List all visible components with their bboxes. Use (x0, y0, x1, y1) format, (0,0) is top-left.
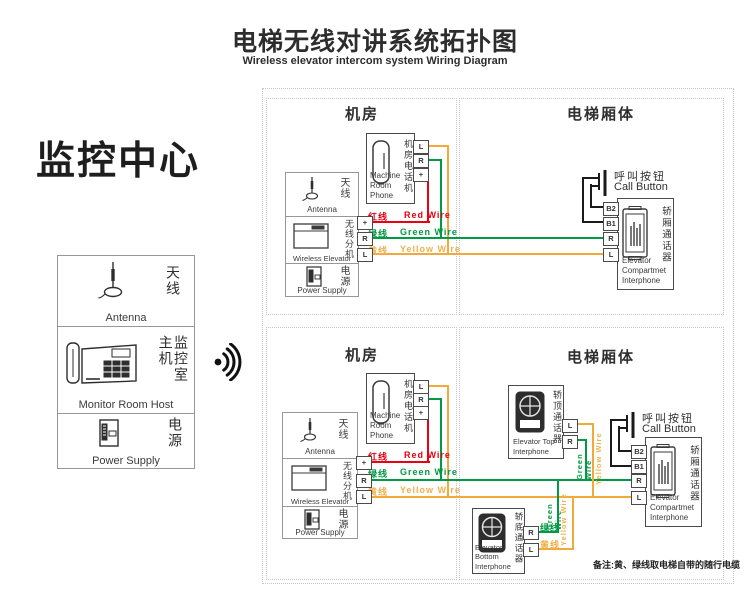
wireless-power-label-cn: 电源 (336, 508, 347, 530)
footnote: 备注:黄、绿线取电梯自带的随行电缆 (593, 558, 740, 571)
terminal-L: L (413, 140, 429, 154)
terminal-L: L (523, 543, 539, 557)
terminal-L: L (357, 248, 373, 262)
green-wire-label-en-bottom: Green Wire (400, 467, 458, 477)
compartment-interphone-label-en: Elevator Compartmet Interphone (622, 256, 666, 286)
wireless-antenna-label-cn: 天线 (338, 177, 349, 199)
page-subtitle: Wireless elevator intercom system Wiring… (225, 55, 525, 67)
wireless-unit-icon (291, 465, 327, 491)
terminal-L: L (603, 248, 619, 262)
page-title: 电梯无线对讲系统拓扑图 (225, 22, 525, 58)
call-button-wire (618, 450, 631, 452)
wireless-unit-top: 天线 Antenna 无线分机 Wireless Elevator (285, 172, 359, 297)
terminal-plus: + (413, 168, 429, 182)
terminal-R: R (523, 526, 539, 540)
wireless-antenna-label-cn: 天线 (336, 418, 347, 440)
terminal-R: R (356, 474, 372, 488)
red-wire-label-en-bottom: Red Wire (404, 450, 451, 460)
terminal-plus: + (356, 456, 372, 470)
bottom-interphone-L-wire-v (572, 497, 574, 550)
terminal-R: R (413, 393, 429, 407)
wireless-main-cell: 无线分机 Wireless Elevator (283, 458, 357, 507)
wireless-unit-icon (293, 223, 329, 249)
yellow-phone-wire-bottom-v (447, 385, 449, 498)
terminal-R: R (603, 232, 619, 246)
terminal-B1: B1 (631, 460, 647, 474)
machine-room-phone-label-en: Machine Room Phone (370, 411, 414, 441)
terminal-L: L (413, 380, 429, 394)
monitor-power-label-en: Power Supply (58, 455, 194, 467)
yellow-main-wire-top (363, 253, 603, 255)
red-wire-label-en-top: Red Wire (404, 210, 451, 220)
elevator-bottom-interphone-label-en: Elevator Bottom Interphone (475, 543, 524, 571)
yellow-wire-vertical-label-2: Yellow Wire (559, 490, 568, 546)
elevator-top-interphone-label-en: Elevator Top Interphone (513, 437, 555, 456)
wireless-main-label-en: Wireless Elevator (286, 254, 358, 263)
terminal-L: L (356, 490, 372, 504)
wireless-main-cell: 无线分机 Wireless Elevator (286, 216, 358, 264)
terminal-L: L (562, 419, 578, 433)
terminal-plus: + (413, 406, 429, 420)
wireless-antenna-label-en: Antenna (286, 205, 358, 215)
terminal-B2: B2 (631, 445, 647, 459)
call-button-label-en: Call Button (614, 181, 668, 193)
terminal-R: R (631, 474, 647, 488)
compartment-interphone-bottom: 轿厢通话器 Elevator Compartmet Interphone (645, 437, 702, 527)
section-title-machine-room-top: 机房 (332, 103, 392, 124)
wireless-power-cell: 电源 Power Supply (283, 506, 357, 539)
wireless-antenna-label-en: Antenna (283, 447, 357, 457)
compartment-interphone-top: 轿厢通话器 Elevator Compartmet Interphone (617, 198, 674, 290)
yellow-main-wire-bottom (363, 496, 631, 498)
wireless-main-label-en: Wireless Elevator (283, 497, 357, 506)
desk-phone-icon (64, 339, 140, 389)
call-button-wire (590, 206, 603, 208)
power-supply-icon (98, 418, 120, 448)
monitor-center-box: 天线 Antenna 监控室主机 Monitor Room Host (57, 255, 195, 469)
terminal-R: R (562, 435, 578, 449)
compartment-interphone-label-en: Elevator Compartmet Interphone (650, 493, 694, 523)
wireless-antenna-cell: 天线 Antenna (286, 173, 358, 216)
machine-room-phone-label-en: Machine Room Phone (370, 171, 414, 201)
speaker-icon (515, 391, 545, 433)
bottom-interphone-green-label: 绿线 (540, 521, 560, 534)
call-button-wire (610, 465, 631, 467)
antenna-icon (300, 417, 320, 445)
yellow-wire-vertical-label-1: Yellow Wire (594, 427, 603, 485)
yellow-phone-wire-top-h (427, 145, 449, 147)
intercom-icon (622, 206, 648, 260)
monitor-host-cell: 监控室主机 Monitor Room Host (58, 326, 194, 414)
yellow-phone-wire-bottom-h (427, 385, 449, 387)
monitor-center-heading: 监控中心 (36, 130, 200, 186)
machine-room-phone-bottom: 机房电话机 Machine Room Phone (366, 373, 415, 444)
wiring-diagram: 电梯无线对讲系统拓扑图 Wireless elevator intercom s… (0, 0, 750, 589)
antenna-icon (98, 261, 128, 305)
terminal-L: L (631, 491, 647, 505)
elevator-bottom-interphone: 轿底通话器 Elevator Bottom Interphone (472, 508, 525, 574)
wireless-main-label-cn: 无线分机 (343, 219, 353, 259)
compartment-interphone-label-cn: 轿厢通话器 (660, 206, 670, 264)
wireless-power-label-en: Power Supply (283, 528, 357, 538)
power-supply-icon (304, 509, 320, 530)
green-main-wire-top (363, 237, 603, 239)
section-title-elevator-body-bottom: 电梯厢体 (566, 346, 636, 367)
wireless-main-label-cn: 无线分机 (341, 461, 351, 501)
machine-room-phone-top: 机房电话机 Machine Room Phone (366, 133, 415, 204)
terminal-plus: + (357, 216, 373, 230)
power-supply-icon (306, 266, 322, 287)
antenna-icon (302, 176, 322, 204)
call-button-icon (612, 410, 640, 440)
monitor-power-label-cn: 电源 (167, 417, 182, 449)
call-button-label-en: Call Button (642, 423, 696, 435)
wireless-signal-icon (212, 343, 254, 381)
wireless-unit-bottom: 天线 Antenna 无线分机 Wireless Elevator (282, 412, 358, 539)
call-button-wire (582, 221, 603, 223)
wireless-power-cell: 电源 Power Supply (286, 263, 358, 297)
terminal-B1: B1 (603, 217, 619, 231)
intercom-icon (650, 444, 676, 498)
wireless-power-label-en: Power Supply (286, 286, 358, 296)
call-button-icon (584, 168, 612, 198)
yellow-wire-label-en-bottom: Yellow Wire (400, 485, 461, 495)
elevator-top-interphone: 轿顶通话器 Elevator Top Interphone (508, 385, 564, 459)
wireless-power-label-cn: 电源 (338, 265, 349, 287)
monitor-antenna-label-en: Antenna (58, 312, 194, 324)
section-title-machine-room-bottom: 机房 (332, 344, 392, 365)
monitor-antenna-label-cn: 天线 (165, 265, 180, 297)
terminal-R: R (357, 232, 373, 246)
monitor-power-cell: 电源 Power Supply (58, 413, 194, 469)
monitor-antenna-cell: 天线 Antenna (58, 256, 194, 326)
monitor-host-label-cn: 监控室主机 (157, 335, 188, 387)
yellow-wire-label-en-top: Yellow Wire (400, 244, 461, 254)
bottom-interphone-yellow-label: 黄线 (540, 538, 560, 551)
wireless-antenna-cell: 天线 Antenna (283, 413, 357, 458)
terminal-R: R (413, 154, 429, 168)
monitor-host-label-en: Monitor Room Host (58, 399, 194, 411)
green-wire-label-en-top: Green Wire (400, 227, 458, 237)
terminal-B2: B2 (603, 202, 619, 216)
section-title-elevator-body-top: 电梯厢体 (566, 103, 636, 124)
